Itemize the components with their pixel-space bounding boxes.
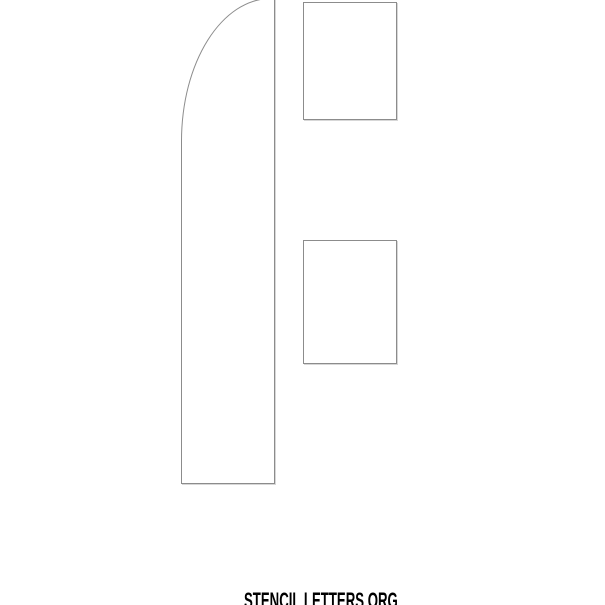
letter-upper-rectangle (303, 2, 397, 120)
letter-lower-rectangle (303, 240, 397, 364)
watermark-text: STENCIL LETTERS ORG (244, 590, 398, 605)
stencil-canvas: STENCIL LETTERS ORG (0, 0, 605, 605)
letter-stem-shape (181, 0, 275, 484)
